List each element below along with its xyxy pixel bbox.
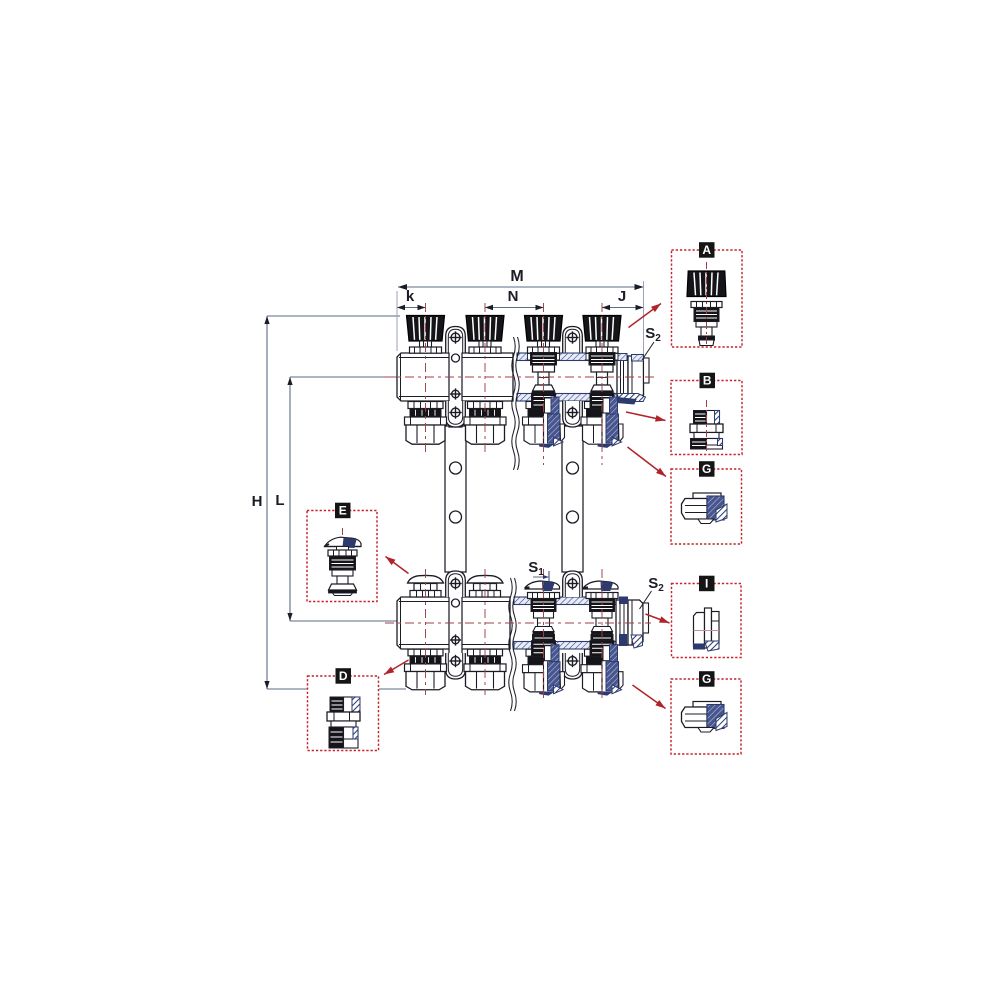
svg-text:D: D (339, 669, 348, 683)
svg-text:M: M (510, 268, 523, 285)
svg-text:k: k (406, 288, 415, 305)
svg-text:G: G (702, 672, 711, 686)
svg-text:J: J (618, 288, 626, 305)
svg-text:L: L (275, 492, 284, 509)
svg-text:A: A (702, 243, 711, 257)
svg-text:H: H (252, 493, 263, 510)
svg-text:G: G (702, 462, 711, 476)
svg-text:E: E (339, 504, 347, 518)
svg-text:I: I (705, 577, 708, 591)
svg-text:N: N (508, 288, 519, 305)
svg-text:B: B (703, 374, 712, 388)
